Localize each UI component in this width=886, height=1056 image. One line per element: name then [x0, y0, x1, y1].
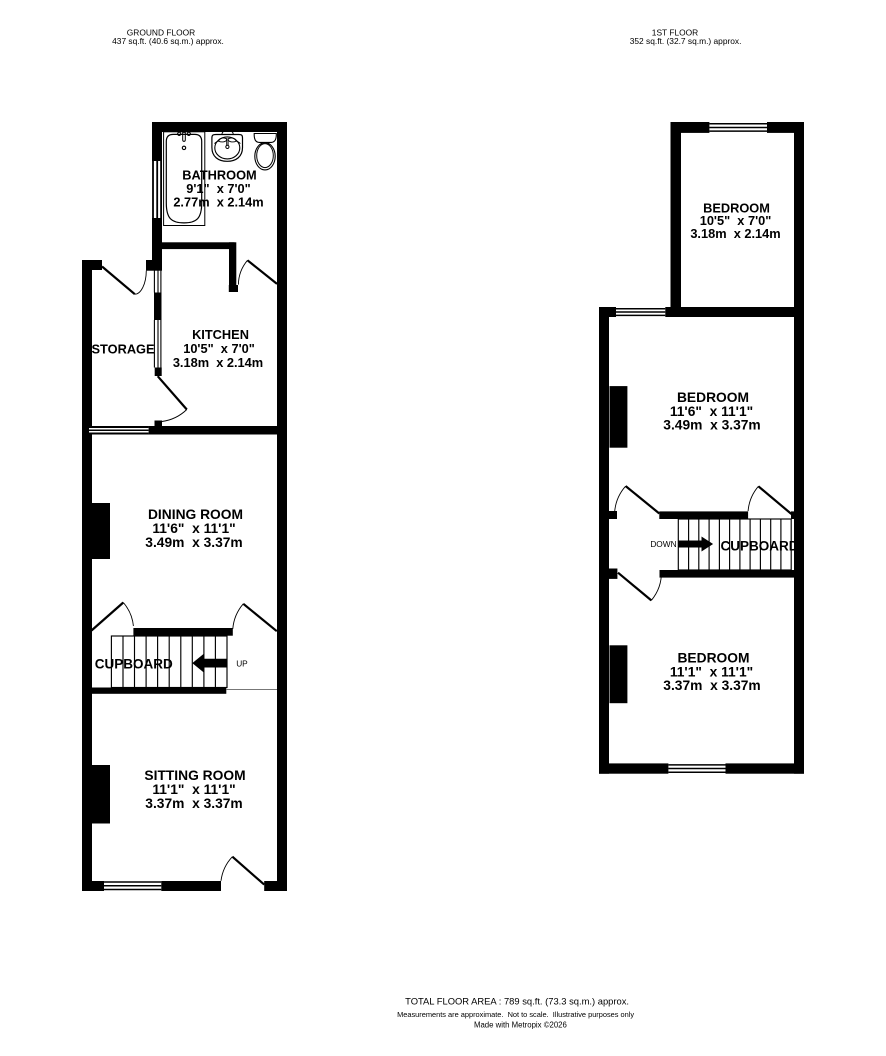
svg-text:11'1" x 11'1": 11'1" x 11'1" — [670, 664, 753, 679]
svg-text:11'6" x 11'1": 11'6" x 11'1" — [670, 404, 753, 419]
svg-text:UP: UP — [236, 658, 248, 668]
svg-text:3.49m x 3.37m: 3.49m x 3.37m — [145, 535, 242, 550]
svg-text:11'6" x 11'1": 11'6" x 11'1" — [152, 521, 235, 536]
svg-text:11'1" x 11'1": 11'1" x 11'1" — [152, 782, 235, 797]
svg-text:3.18m x 2.14m: 3.18m x 2.14m — [173, 355, 263, 370]
svg-text:STORAGE: STORAGE — [92, 342, 156, 357]
svg-text:TOTAL FLOOR AREA : 789 sq.ft.: TOTAL FLOOR AREA : 789 sq.ft. (73.3 sq.m… — [405, 996, 629, 1007]
svg-text:3.37m x 3.37m: 3.37m x 3.37m — [145, 796, 242, 811]
svg-text:CUPBOARD: CUPBOARD — [95, 656, 173, 671]
svg-text:Made with Metropix ©2026: Made with Metropix ©2026 — [474, 1020, 567, 1029]
svg-text:Measurements are approximate.: Measurements are approximate. Not to sca… — [397, 1010, 634, 1019]
svg-text:BEDROOM: BEDROOM — [677, 650, 749, 665]
svg-text:3.18m x 2.14m: 3.18m x 2.14m — [690, 226, 780, 241]
svg-text:DOWN: DOWN — [650, 539, 676, 549]
svg-text:3.49m x 3.37m: 3.49m x 3.37m — [663, 418, 760, 433]
svg-text:KITCHEN: KITCHEN — [192, 327, 249, 342]
svg-text:CUPBOARD: CUPBOARD — [721, 538, 799, 553]
svg-text:10'5" x 7'0": 10'5" x 7'0" — [183, 341, 255, 356]
svg-text:437 sq.ft. (40.6 sq.m.) approx: 437 sq.ft. (40.6 sq.m.) approx. — [112, 36, 224, 46]
svg-text:BEDROOM: BEDROOM — [677, 390, 749, 405]
svg-text:SITTING ROOM: SITTING ROOM — [144, 768, 245, 783]
svg-text:352 sq.ft. (32.7 sq.m.) approx: 352 sq.ft. (32.7 sq.m.) approx. — [630, 36, 742, 46]
svg-text:2.77m x 2.14m: 2.77m x 2.14m — [173, 195, 263, 210]
svg-text:DINING ROOM: DINING ROOM — [148, 507, 243, 522]
svg-text:3.37m x 3.37m: 3.37m x 3.37m — [663, 678, 760, 693]
